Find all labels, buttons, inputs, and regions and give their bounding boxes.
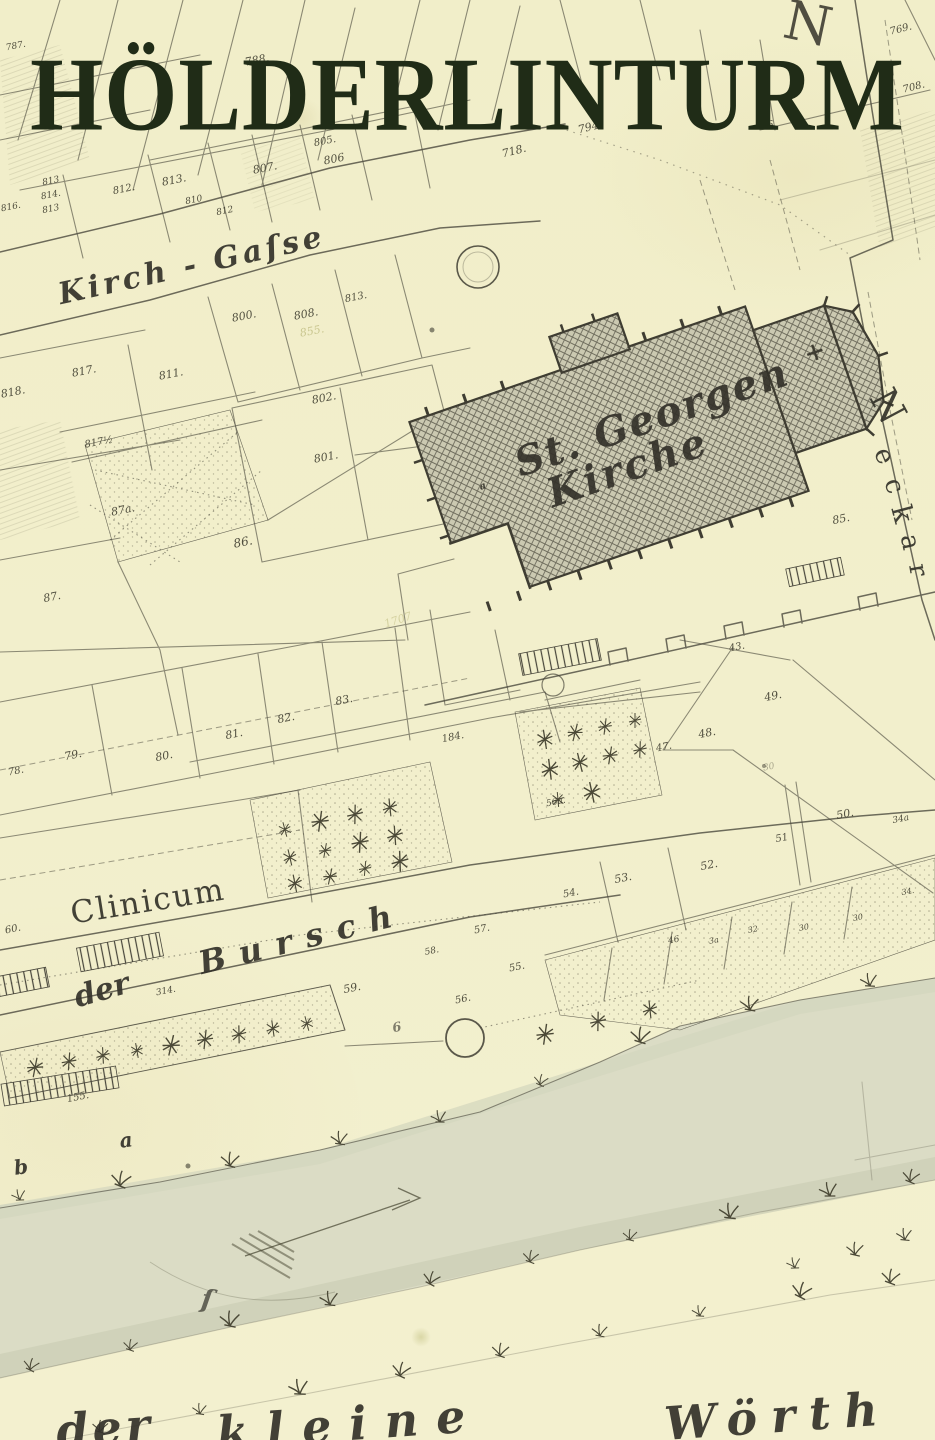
- parcel-number-label: 78.: [7, 766, 25, 779]
- parcel-number-label: 83.: [334, 693, 353, 707]
- parcel-number-label: 801.: [313, 449, 339, 464]
- parcel-number-label: 30: [852, 913, 864, 923]
- parcel-number-label: 816.: [0, 202, 21, 215]
- parcel-number-label: 85.: [831, 512, 850, 526]
- parcel-number-label: 80.: [154, 749, 173, 763]
- parcel-number-label: 808.: [293, 306, 319, 321]
- parcel-number-label: 55.: [508, 962, 526, 975]
- bank-label-a: a: [118, 1129, 134, 1151]
- parcel-number-label: 43.: [728, 642, 746, 655]
- river-label-neckar-e: e: [869, 444, 899, 468]
- parcel-number-label: 58.: [424, 946, 440, 958]
- parcel-number-label: 34a: [892, 814, 910, 826]
- parcel-number-label: 51: [775, 833, 789, 845]
- parcel-number-label: 314.: [155, 986, 176, 999]
- street-label-kirch-gasse: Kirch - Gaſse: [56, 222, 329, 310]
- river-label-neckar-a: a: [896, 532, 925, 553]
- river-flourish: ſ: [200, 1286, 215, 1313]
- parcel-number-label: 32: [747, 925, 759, 935]
- parcel-number-label: 54.: [562, 888, 580, 901]
- small-label-6: 6: [391, 1021, 402, 1035]
- parcel-number-label: 855.: [299, 323, 325, 338]
- island-label-kleine: kleine: [215, 1392, 484, 1440]
- map-cover: Kirch - GaſseSt. GeorgenKircheClinicumde…: [0, 0, 935, 1440]
- parcel-number-label: 807.: [252, 160, 278, 175]
- parcel-number-label: 81.: [224, 727, 243, 741]
- page-title: HÖLDERLINTURM: [0, 42, 935, 147]
- parcel-number-label: 184.: [441, 731, 465, 745]
- parcel-number-label: 1707: [383, 610, 413, 629]
- parcel-number-label: 155.: [66, 1091, 90, 1105]
- parcel-number-label: 818.: [0, 384, 26, 399]
- parcel-number-label: 87.: [42, 590, 61, 604]
- parcel-number-label: 34.: [901, 887, 915, 897]
- parcel-number-label: 817½: [84, 435, 114, 450]
- parcel-number-label: 806: [323, 152, 346, 167]
- parcel-number-label: 769.: [889, 22, 913, 37]
- parcel-number-label: 814.: [40, 190, 61, 203]
- parcel-number-label: 813.: [161, 172, 187, 187]
- parcel-number-label: 82.: [276, 711, 295, 725]
- parcel-number-label: 86.: [232, 534, 253, 549]
- parcel-number-label: 30: [763, 762, 776, 773]
- river-label-neckar-n: N: [863, 382, 912, 429]
- river-label-neckar-c: c: [879, 475, 908, 497]
- parcel-number-label: 60.: [4, 924, 22, 937]
- parcel-number-label: 56a.: [545, 797, 566, 810]
- parcel-number-label: 49.: [763, 689, 782, 703]
- parcel-number-label: 56.: [454, 994, 472, 1007]
- building-label-clinicum: Clinicum: [68, 874, 227, 929]
- river-label-neckar-r: r: [904, 562, 932, 579]
- map-labels: Kirch - GaſseSt. GeorgenKircheClinicumde…: [0, 0, 935, 1440]
- parcel-number-label: 79.: [63, 748, 82, 762]
- parcel-number-label: 87a.: [110, 502, 136, 517]
- parcel-number-label: 57.: [473, 924, 491, 937]
- parcel-number-label: 812.: [112, 183, 136, 197]
- parcel-number-label: 30: [798, 923, 810, 933]
- river-label-neckar-k: k: [886, 502, 917, 526]
- bank-label-b: b: [13, 1156, 30, 1178]
- parcel-number-label: 810: [185, 195, 204, 207]
- parcel-number-label: 59.: [342, 981, 361, 995]
- parcel-number-label: 813: [42, 176, 61, 188]
- parcel-number-label: 802.: [311, 390, 337, 405]
- parcel-number-label: 813: [42, 204, 61, 216]
- parcel-number-label: 53.: [613, 871, 632, 885]
- parcel-number-label: 3a: [708, 936, 719, 946]
- island-label-der: der: [55, 1402, 156, 1440]
- church-court-label-a: a: [478, 481, 487, 493]
- parcel-number-label: 48.: [697, 726, 716, 740]
- street-label-bursch: Bursch: [195, 897, 408, 979]
- parcel-number-label: 813.: [344, 291, 368, 305]
- parcel-number-label: 52.: [699, 858, 718, 872]
- parcel-number-label: 817.: [71, 363, 97, 378]
- parcel-number-label: 47.: [655, 742, 673, 755]
- island-label-woerth: Wörth: [663, 1385, 893, 1440]
- parcel-number-label: 812: [216, 206, 235, 218]
- parcel-number-label: 46: [668, 935, 681, 946]
- parcel-number-label: 50.: [835, 807, 854, 821]
- street-label-der: der: [71, 969, 133, 1013]
- parcel-number-label: 811.: [158, 366, 184, 381]
- parcel-number-label: 800.: [231, 308, 257, 323]
